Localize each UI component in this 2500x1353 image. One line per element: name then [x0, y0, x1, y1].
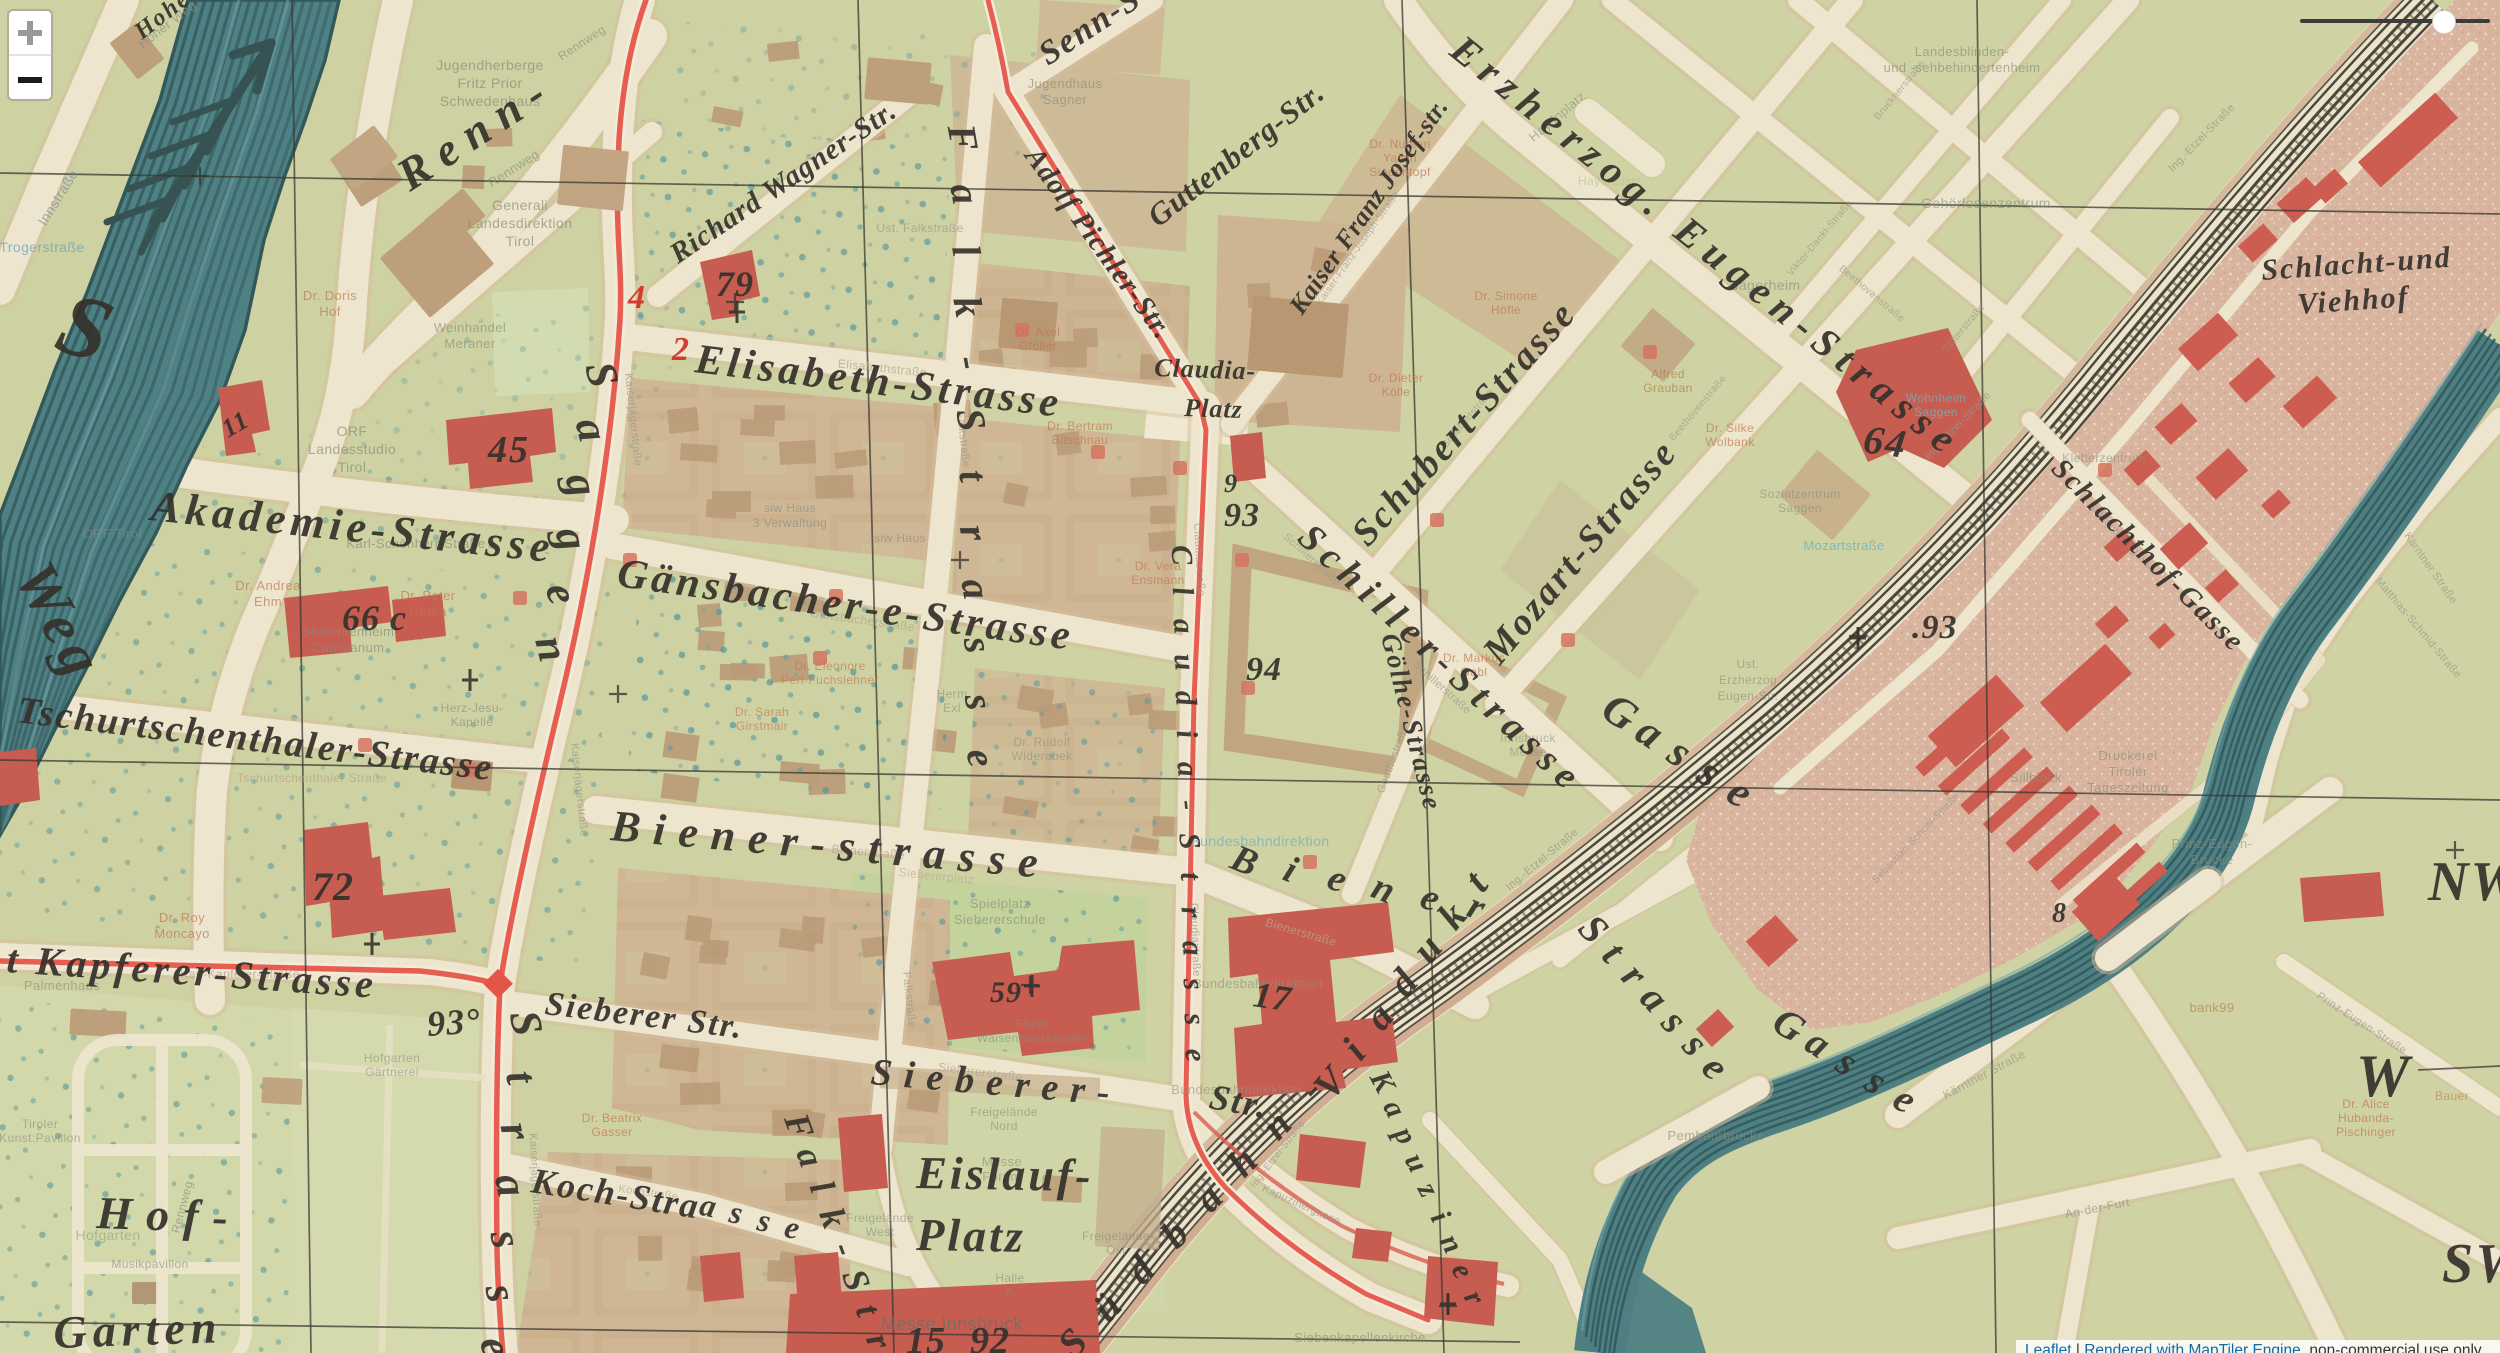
svg-text:Kapelle: Kapelle	[451, 715, 494, 729]
svg-text:79: 79	[716, 264, 754, 304]
svg-text:Dr. Rudolf: Dr. Rudolf	[1013, 735, 1071, 749]
svg-text:Canisianum: Canisianum	[312, 640, 385, 655]
svg-text:Dr. Andrea: Dr. Andrea	[235, 578, 301, 593]
svg-text:Freigelände: Freigelände	[846, 1211, 914, 1225]
svg-text:Gärtnerei: Gärtnerei	[365, 1065, 419, 1079]
svg-text:Tirol: Tirol	[338, 459, 367, 475]
svg-text:Hofgarten: Hofgarten	[364, 1051, 420, 1065]
svg-text:West: West	[866, 1225, 895, 1239]
svg-text:4: 4	[627, 279, 647, 316]
svg-text:Landesblinden-: Landesblinden-	[1915, 44, 2010, 59]
svg-text:.93: .93	[1912, 609, 1958, 646]
svg-text:Dr. Sarah: Dr. Sarah	[735, 705, 789, 719]
svg-text:Trogerstraße: Trogerstraße	[0, 239, 85, 255]
svg-text:72: 72	[312, 864, 354, 909]
svg-text:A: A	[1006, 1285, 1014, 1299]
svg-text:Hof: Hof	[319, 304, 340, 319]
svg-text:ORF Tirol: ORF Tirol	[82, 526, 141, 541]
svg-text:9: 9	[1224, 469, 1238, 498]
svg-text:Dr. Beatrix: Dr. Beatrix	[582, 1111, 642, 1125]
svg-text:Dr. Simone: Dr. Simone	[1474, 289, 1537, 303]
svg-text:Hof-: Hof-	[95, 1187, 243, 1243]
svg-text:Meraner: Meraner	[444, 336, 495, 351]
svg-text:bank99: bank99	[2189, 1000, 2234, 1015]
svg-text:17: 17	[1251, 974, 1295, 1019]
svg-text:Freigelände: Freigelände	[970, 1105, 1038, 1119]
svg-text:und -sehbehindertenheim: und -sehbehindertenheim	[1884, 60, 2041, 75]
svg-text:ORF: ORF	[337, 423, 368, 439]
svg-text:Gföller: Gföller	[1019, 339, 1057, 353]
svg-text:Weinhandel: Weinhandel	[434, 320, 506, 335]
svg-text:8: 8	[2052, 898, 2067, 929]
svg-text:93: 93	[1224, 497, 1260, 534]
svg-text:Ust. Falkstraße: Ust. Falkstraße	[876, 221, 963, 235]
svg-text:Eugen-Str.: Eugen-Str.	[1718, 689, 1779, 703]
svg-text:Druckerei: Druckerei	[2098, 748, 2157, 763]
svg-text:Gehörlosenzentrum: Gehörlosenzentrum	[1921, 195, 2051, 211]
svg-text:Siebererschule: Siebererschule	[954, 912, 1046, 927]
svg-text:Claudia-: Claudia-	[1154, 353, 1257, 386]
svg-text:Leaflet | Rendered with MapTil: Leaflet | Rendered with MapTiler Engine,…	[2025, 1342, 2482, 1353]
svg-text:Wolbank: Wolbank	[1705, 435, 1755, 449]
svg-text:Ust.: Ust.	[1737, 657, 1760, 671]
svg-text:Girstmair: Girstmair	[736, 719, 788, 733]
svg-text:siw Haus: siw Haus	[874, 531, 926, 545]
svg-text:Bauer: Bauer	[2435, 1089, 2469, 1103]
svg-text:NW: NW	[2427, 851, 2500, 913]
svg-text:Saggen: Saggen	[1778, 501, 1822, 515]
svg-text:Halle: Halle	[995, 1271, 1024, 1285]
svg-text:Landesstudio: Landesstudio	[308, 441, 396, 457]
svg-text:Pembaurbrücke: Pembaurbrücke	[1668, 1128, 1765, 1143]
svg-text:Moncayo: Moncayo	[154, 926, 210, 941]
svg-text:siw Haus: siw Haus	[764, 501, 816, 515]
svg-text:Herz-Jesu-: Herz-Jesu-	[441, 701, 504, 715]
svg-text:Kunst:Pavillon: Kunst:Pavillon	[0, 1131, 81, 1145]
svg-text:Dr. Roy: Dr. Roy	[159, 910, 205, 925]
svg-text:Dr. Silke: Dr. Silke	[1706, 421, 1754, 435]
svg-text:Pischinger: Pischinger	[2336, 1125, 2396, 1139]
svg-text:Alfred: Alfred	[1651, 367, 1685, 381]
svg-text:2: 2	[671, 331, 691, 368]
svg-text:S: S	[1172, 831, 1207, 851]
svg-text:Platz: Platz	[915, 1209, 1026, 1262]
svg-text:93°: 93°	[426, 1000, 482, 1044]
svg-text:94: 94	[1246, 651, 1282, 688]
svg-text:Tiroler: Tiroler	[22, 1117, 58, 1131]
svg-text:92: 92	[970, 1320, 1010, 1353]
svg-text:3 Verwaltung: 3 Verwaltung	[753, 516, 827, 530]
svg-text:Landesdirektion: Landesdirektion	[468, 215, 573, 231]
svg-text:Höfle: Höfle	[1491, 303, 1521, 317]
svg-text:Sagner: Sagner	[1043, 92, 1088, 107]
svg-text:Hubanda-: Hubanda-	[2338, 1111, 2394, 1125]
svg-text:Eislauf-: Eislauf-	[915, 1147, 1094, 1201]
svg-text:Ehem: Ehem	[1016, 1017, 1049, 1031]
svg-text:Perl-Fuchslehner: Perl-Fuchslehner	[781, 673, 879, 687]
svg-text:59: 59	[990, 976, 1022, 1009]
svg-text:Waisenhauskapelle: Waisenhauskapelle	[977, 1031, 1087, 1045]
svg-text:45: 45	[487, 429, 530, 471]
svg-text:u: u	[1167, 652, 1202, 672]
svg-text:Musikpavillon: Musikpavillon	[111, 1257, 188, 1271]
svg-text:Dr. Dieter: Dr. Dieter	[1369, 371, 1424, 385]
svg-text:Spielplatz: Spielplatz	[970, 896, 1030, 911]
svg-text:Jugendhaus: Jugendhaus	[1028, 76, 1103, 91]
svg-text:Brücke: Brücke	[2191, 852, 2234, 867]
svg-text:Erzherzog: Erzherzog	[1719, 673, 1777, 687]
svg-text:Gurka: Gurka	[409, 604, 447, 619]
svg-text:Grauban: Grauban	[1643, 381, 1693, 395]
svg-text:Prinz-Eugen-: Prinz-Eugen-	[2172, 836, 2253, 851]
svg-text:Ehm: Ehm	[254, 594, 282, 609]
svg-text:Widerabek: Widerabek	[1012, 749, 1074, 763]
svg-text:W: W	[2356, 1043, 2413, 1109]
svg-text:Siebenkapellenkirche: Siebenkapellenkirche	[1294, 1330, 1426, 1345]
svg-text:Gasser: Gasser	[591, 1125, 632, 1139]
svg-text:Kölle: Kölle	[1382, 385, 1411, 399]
svg-text:Generali: Generali	[492, 197, 548, 213]
svg-text:Sillblock: Sillblock	[2010, 770, 2061, 785]
svg-text:Dr. Doris: Dr. Doris	[303, 288, 357, 303]
svg-text:Freigelände: Freigelände	[1082, 1229, 1150, 1243]
svg-text:Sozialzentrum: Sozialzentrum	[1759, 487, 1840, 501]
svg-text:64: 64	[1861, 416, 1911, 467]
svg-text:Platz: Platz	[1183, 393, 1243, 424]
svg-text:Tageszeitung: Tageszeitung	[2087, 780, 2168, 795]
svg-text:Dr. Axel: Dr. Axel	[1016, 325, 1061, 339]
svg-text:Tirol: Tirol	[506, 233, 535, 249]
svg-text:Nord: Nord	[990, 1119, 1018, 1133]
svg-text:Mozartstraße: Mozartstraße	[1803, 538, 1884, 553]
svg-text:Bitschnau: Bitschnau	[1052, 433, 1108, 447]
svg-text:Dr. Eleonore: Dr. Eleonore	[794, 659, 866, 673]
svg-text:15: 15	[906, 1320, 946, 1353]
svg-text:66 c: 66 c	[342, 598, 407, 638]
svg-text:SW: SW	[2442, 1233, 2500, 1295]
svg-text:Tiroler: Tiroler	[2108, 764, 2147, 779]
svg-text:Garten: Garten	[53, 1301, 224, 1353]
svg-text:Dr. Peter: Dr. Peter	[401, 588, 456, 603]
svg-text:Ensmann: Ensmann	[1131, 573, 1185, 587]
